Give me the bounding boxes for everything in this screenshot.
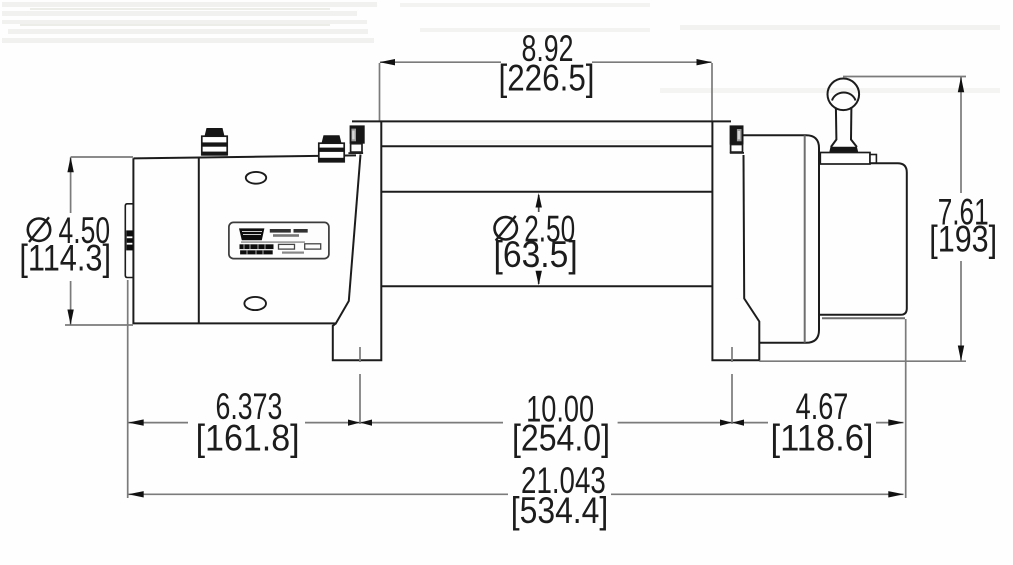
svg-text:[534.4]: [534.4]: [511, 490, 609, 531]
svg-text:[193]: [193]: [929, 219, 997, 260]
svg-text:[118.6]: [118.6]: [771, 417, 874, 458]
svg-text:[63.5]: [63.5]: [494, 234, 578, 275]
svg-text:[161.8]: [161.8]: [196, 417, 300, 458]
svg-text:[226.5]: [226.5]: [499, 57, 595, 98]
svg-text:[254.0]: [254.0]: [512, 417, 610, 458]
svg-text:[114.3]: [114.3]: [19, 238, 111, 279]
